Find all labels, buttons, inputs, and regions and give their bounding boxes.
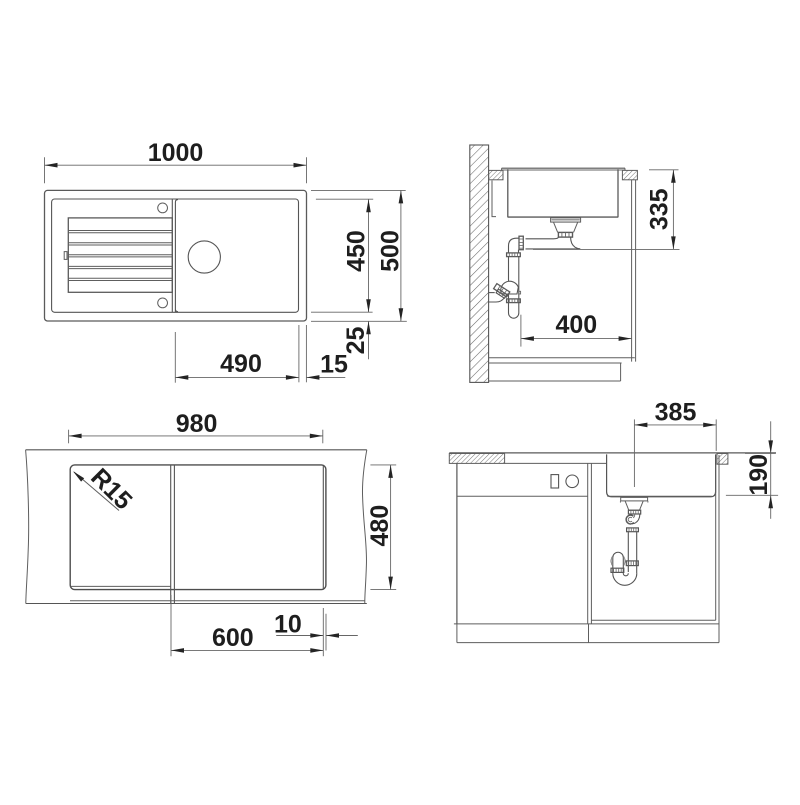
svg-text:480: 480 — [366, 505, 394, 547]
svg-text:1000: 1000 — [148, 139, 204, 167]
svg-text:10: 10 — [274, 610, 302, 638]
svg-text:190: 190 — [745, 454, 773, 496]
svg-text:335: 335 — [645, 188, 673, 230]
svg-text:980: 980 — [176, 410, 218, 438]
svg-text:400: 400 — [555, 311, 597, 339]
svg-text:385: 385 — [655, 398, 697, 426]
svg-text:450: 450 — [343, 230, 371, 272]
svg-text:500: 500 — [376, 230, 404, 272]
svg-text:15: 15 — [320, 351, 348, 379]
svg-text:490: 490 — [220, 350, 262, 378]
svg-text:R15: R15 — [85, 463, 137, 515]
svg-text:600: 600 — [212, 624, 254, 652]
